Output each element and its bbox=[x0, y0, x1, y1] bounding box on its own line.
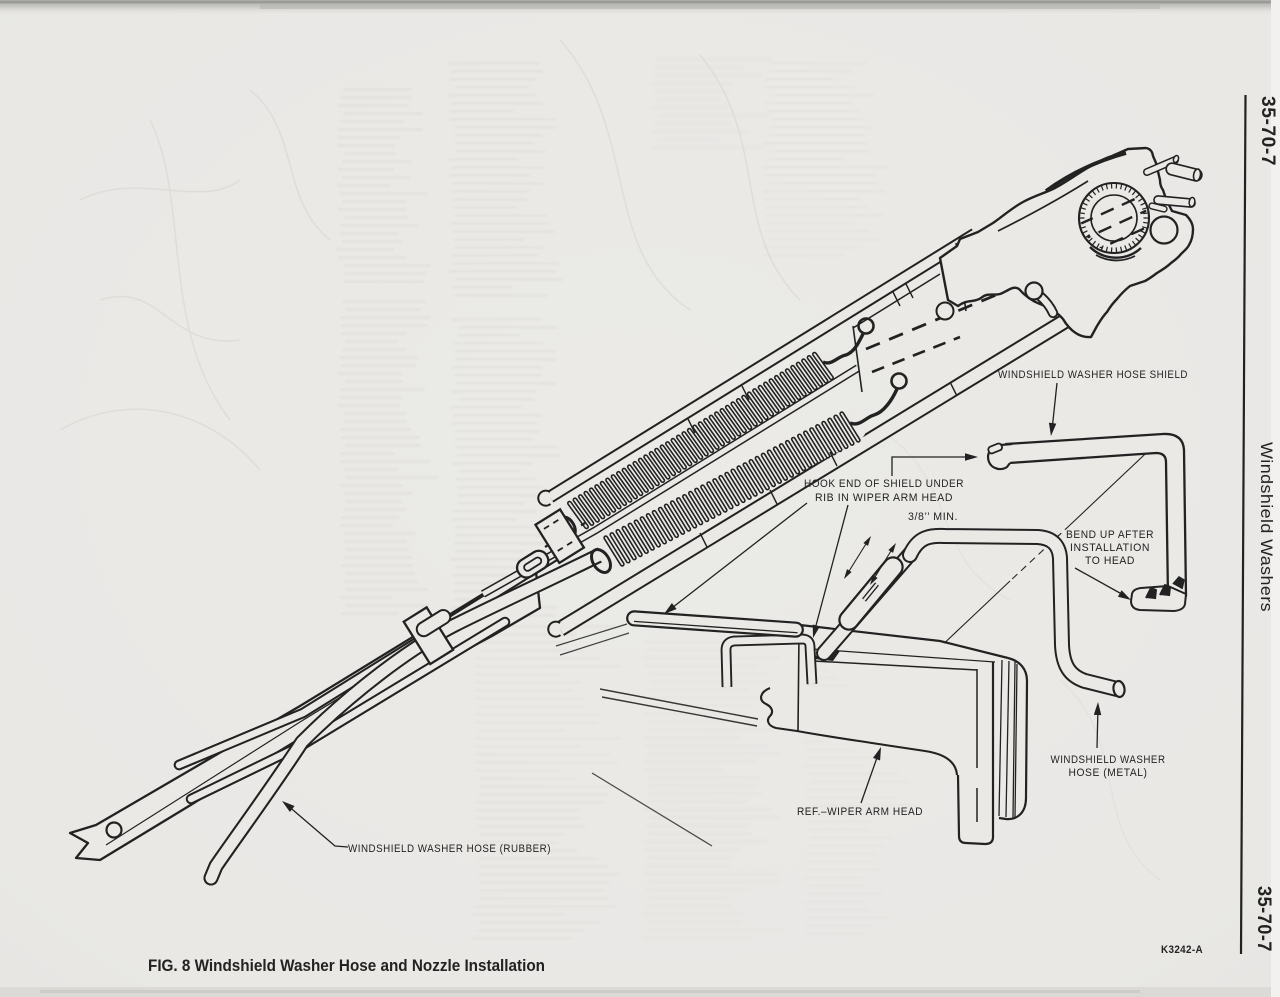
svg-text:INSTALLATION: INSTALLATION bbox=[1070, 542, 1150, 554]
svg-text:3/8’’ MIN.: 3/8’’ MIN. bbox=[908, 511, 958, 523]
svg-text:35-70-7: 35-70-7 bbox=[1253, 886, 1274, 952]
svg-text:WINDSHIELD WASHER HOSE (RUBBER: WINDSHIELD WASHER HOSE (RUBBER) bbox=[348, 843, 551, 855]
svg-text:RIB IN WIPER ARM HEAD: RIB IN WIPER ARM HEAD bbox=[815, 492, 953, 504]
svg-text:35-70-7: 35-70-7 bbox=[1257, 96, 1278, 166]
svg-text:WINDSHIELD WASHER: WINDSHIELD WASHER bbox=[1051, 754, 1166, 766]
svg-text:Windshield Washers: Windshield Washers bbox=[1257, 442, 1276, 612]
svg-text:HOSE (METAL): HOSE (METAL) bbox=[1069, 767, 1148, 779]
svg-text:K3242-A: K3242-A bbox=[1161, 944, 1203, 956]
svg-text:WINDSHIELD WASHER HOSE SHIELD: WINDSHIELD WASHER HOSE SHIELD bbox=[998, 369, 1188, 381]
svg-text:BEND UP AFTER: BEND UP AFTER bbox=[1066, 529, 1154, 541]
svg-text:TO HEAD: TO HEAD bbox=[1085, 555, 1135, 567]
svg-text:HOOK END OF SHIELD UNDER: HOOK END OF SHIELD UNDER bbox=[804, 478, 964, 490]
svg-text:FIG. 8 Windshield Washer Hose: FIG. 8 Windshield Washer Hose and Nozzle… bbox=[148, 956, 545, 975]
svg-text:REF.–WIPER ARM HEAD: REF.–WIPER ARM HEAD bbox=[797, 806, 923, 818]
